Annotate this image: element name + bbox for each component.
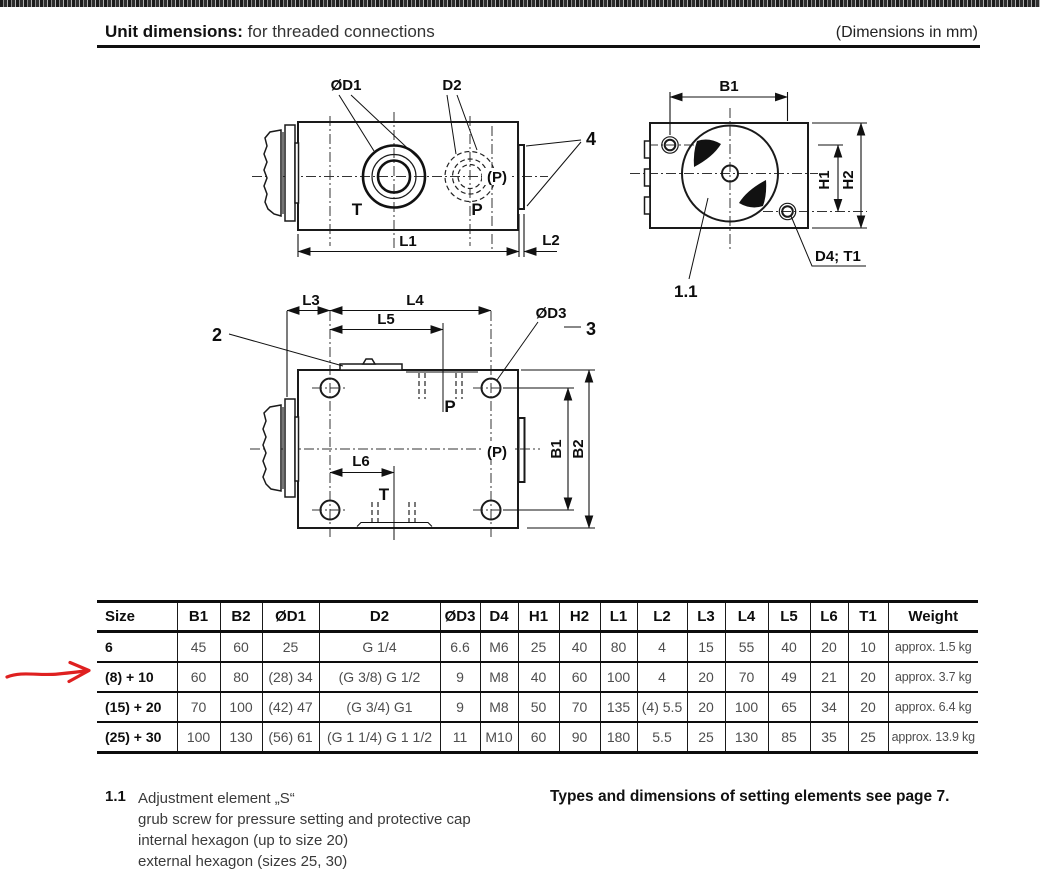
- label-p-port-front: P: [471, 200, 482, 219]
- cell: (15) + 20: [97, 692, 177, 722]
- end-view-drawing: B1 H1 H2 D4; T1 1.1: [630, 78, 867, 301]
- column-header: ØD3: [440, 602, 480, 632]
- cell: (4) 5.5: [637, 692, 687, 722]
- cell: 60: [518, 722, 559, 753]
- cell: 49: [768, 662, 810, 692]
- dim-h1: H1: [816, 170, 833, 189]
- cell: 100: [177, 722, 220, 753]
- cell: approx. 13.9 kg: [888, 722, 978, 753]
- cell: 130: [220, 722, 262, 753]
- table-header-row: Size B1 B2 ØD1 D2 ØD3 D4 H1 H2 L1 L2 L3 …: [97, 602, 978, 632]
- cell: 40: [768, 632, 810, 663]
- callout-2: 2: [212, 325, 222, 345]
- label-d4-t1: D4; T1: [815, 248, 861, 265]
- cell: G 1/4: [319, 632, 440, 663]
- cell: 100: [220, 692, 262, 722]
- dim-l1: L1: [399, 233, 417, 250]
- cell: M6: [480, 632, 518, 663]
- datasheet-page: Unit dimensions: for threaded connection…: [0, 0, 1040, 874]
- column-header: H1: [518, 602, 559, 632]
- cell: 20: [687, 692, 725, 722]
- cell: 35: [810, 722, 848, 753]
- cell: 5.5: [637, 722, 687, 753]
- cell: 80: [600, 632, 637, 663]
- red-arrow-annotation: [7, 663, 89, 682]
- cell: approx. 6.4 kg: [888, 692, 978, 722]
- cell: 40: [518, 662, 559, 692]
- dim-b2-top: B2: [570, 439, 587, 458]
- dim-l2: L2: [542, 232, 560, 249]
- cell: 20: [810, 632, 848, 663]
- cell: 15: [687, 632, 725, 663]
- cell: (25) + 30: [97, 722, 177, 753]
- column-header: H2: [559, 602, 600, 632]
- cell: approx. 1.5 kg: [888, 632, 978, 663]
- column-header: B1: [177, 602, 220, 632]
- table-row-highlighted: (8) + 10 60 80 (28) 34 (G 3/8) G 1/2 9 M…: [97, 662, 978, 692]
- cell: (56) 61: [262, 722, 319, 753]
- footnote-line-3: internal hexagon (up to size 20): [138, 830, 558, 851]
- top-view-drawing: L3 L4 L5 L6 ØD3 3 2 P T (P) B1 B2: [212, 292, 596, 540]
- table-row: (25) + 30 100 130 (56) 61 (G 1 1/4) G 1 …: [97, 722, 978, 753]
- cell: (G 1 1/4) G 1 1/2: [319, 722, 440, 753]
- cell: approx. 3.7 kg: [888, 662, 978, 692]
- dim-l6: L6: [352, 453, 370, 470]
- cell: 34: [810, 692, 848, 722]
- cell: 20: [687, 662, 725, 692]
- cell: 70: [559, 692, 600, 722]
- cell: 135: [600, 692, 637, 722]
- cell: 55: [725, 632, 768, 663]
- label-od3: ØD3: [536, 305, 567, 322]
- front-view-drawing: ØD1 D2 4 (P) T P L1 L2: [252, 77, 596, 257]
- cell: 100: [725, 692, 768, 722]
- cell: 11: [440, 722, 480, 753]
- column-header: D4: [480, 602, 518, 632]
- cell: M8: [480, 662, 518, 692]
- cell: 80: [220, 662, 262, 692]
- cell: 20: [848, 662, 888, 692]
- cell: 6: [97, 632, 177, 663]
- column-header: Weight: [888, 602, 978, 632]
- column-header: Size: [97, 602, 177, 632]
- table-row: (15) + 20 70 100 (42) 47 (G 3/4) G1 9 M8…: [97, 692, 978, 722]
- table-row: 6 45 60 25 G 1/4 6.6 M6 25 40 80 4 15 55…: [97, 632, 978, 663]
- cell: (G 3/4) G1: [319, 692, 440, 722]
- column-header: T1: [848, 602, 888, 632]
- callout-4: 4: [586, 129, 596, 149]
- label-t-port-front: T: [352, 200, 363, 219]
- column-header: L4: [725, 602, 768, 632]
- cell: 10: [848, 632, 888, 663]
- column-header: D2: [319, 602, 440, 632]
- footnote-line-2: grub screw for pressure setting and prot…: [138, 809, 558, 830]
- cell: 6.6: [440, 632, 480, 663]
- column-header: L2: [637, 602, 687, 632]
- cell: (8) + 10: [97, 662, 177, 692]
- label-d2: D2: [442, 77, 461, 94]
- cell: 65: [768, 692, 810, 722]
- dim-l5: L5: [377, 311, 395, 328]
- cell: (42) 47: [262, 692, 319, 722]
- cell: 90: [559, 722, 600, 753]
- cell: (28) 34: [262, 662, 319, 692]
- footnote-number: 1.1: [105, 788, 126, 805]
- cell: 4: [637, 632, 687, 663]
- cell: 9: [440, 692, 480, 722]
- callout-1-1: 1.1: [674, 282, 698, 301]
- cell: 4: [637, 662, 687, 692]
- cell: 20: [848, 692, 888, 722]
- dimension-table: Size B1 B2 ØD1 D2 ØD3 D4 H1 H2 L1 L2 L3 …: [97, 600, 978, 754]
- cell: 21: [810, 662, 848, 692]
- dim-l3: L3: [302, 292, 320, 309]
- column-header: L6: [810, 602, 848, 632]
- label-t-port-top: T: [379, 485, 390, 504]
- setting-elements-note: Types and dimensions of setting elements…: [550, 788, 949, 806]
- cell: 60: [220, 632, 262, 663]
- knob-blade-lower: [739, 180, 766, 207]
- cell: 40: [559, 632, 600, 663]
- cell: 25: [518, 632, 559, 663]
- cell: M10: [480, 722, 518, 753]
- cell: 70: [177, 692, 220, 722]
- dim-b1-top: B1: [548, 439, 565, 458]
- dim-b1-end: B1: [719, 78, 738, 95]
- column-header: B2: [220, 602, 262, 632]
- cell: 50: [518, 692, 559, 722]
- cell: 25: [848, 722, 888, 753]
- column-header: L1: [600, 602, 637, 632]
- cell: 45: [177, 632, 220, 663]
- dim-l4: L4: [406, 292, 424, 309]
- footnote-text: Adjustment element „S“ grub screw for pr…: [138, 788, 558, 872]
- cell: 25: [262, 632, 319, 663]
- column-header: L3: [687, 602, 725, 632]
- cell: 70: [725, 662, 768, 692]
- label-p-port-top: P: [444, 397, 455, 416]
- cell: M8: [480, 692, 518, 722]
- cell: 25: [687, 722, 725, 753]
- column-header: ØD1: [262, 602, 319, 632]
- cell: 180: [600, 722, 637, 753]
- cell: (G 3/8) G 1/2: [319, 662, 440, 692]
- cell: 9: [440, 662, 480, 692]
- cell: 85: [768, 722, 810, 753]
- cell: 60: [559, 662, 600, 692]
- dim-h2: H2: [840, 170, 857, 189]
- label-od1: ØD1: [331, 77, 362, 94]
- cell: 60: [177, 662, 220, 692]
- cell: 130: [725, 722, 768, 753]
- callout-3: 3: [586, 319, 596, 339]
- footnote-line-4: external hexagon (sizes 25, 30): [138, 851, 558, 872]
- footnote-line-1: Adjustment element „S“: [138, 788, 558, 809]
- cell: 100: [600, 662, 637, 692]
- label-p-paren-top: (P): [487, 444, 507, 461]
- column-header: L5: [768, 602, 810, 632]
- label-p-paren-front: (P): [487, 169, 507, 186]
- knob-blade-upper: [694, 140, 721, 167]
